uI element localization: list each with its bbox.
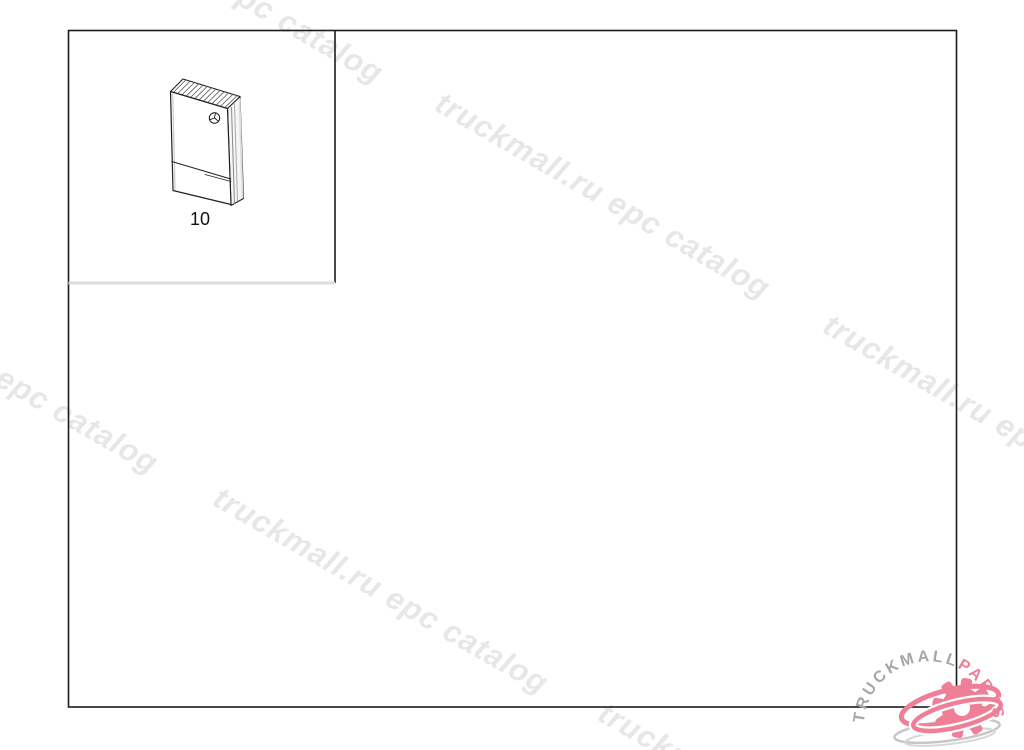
truckmall-logo: TRUCKMALLPARTS — [851, 648, 1007, 749]
owner-manual-book-icon — [171, 79, 244, 206]
catalog-page: truckmall.ru epc catalog truckmall.ru ep… — [0, 0, 1024, 750]
parts-diagram: 10 — [0, 0, 1024, 750]
callout-label-10[interactable]: 10 — [190, 209, 210, 229]
part-hotspot-10[interactable]: 10 — [171, 79, 244, 229]
